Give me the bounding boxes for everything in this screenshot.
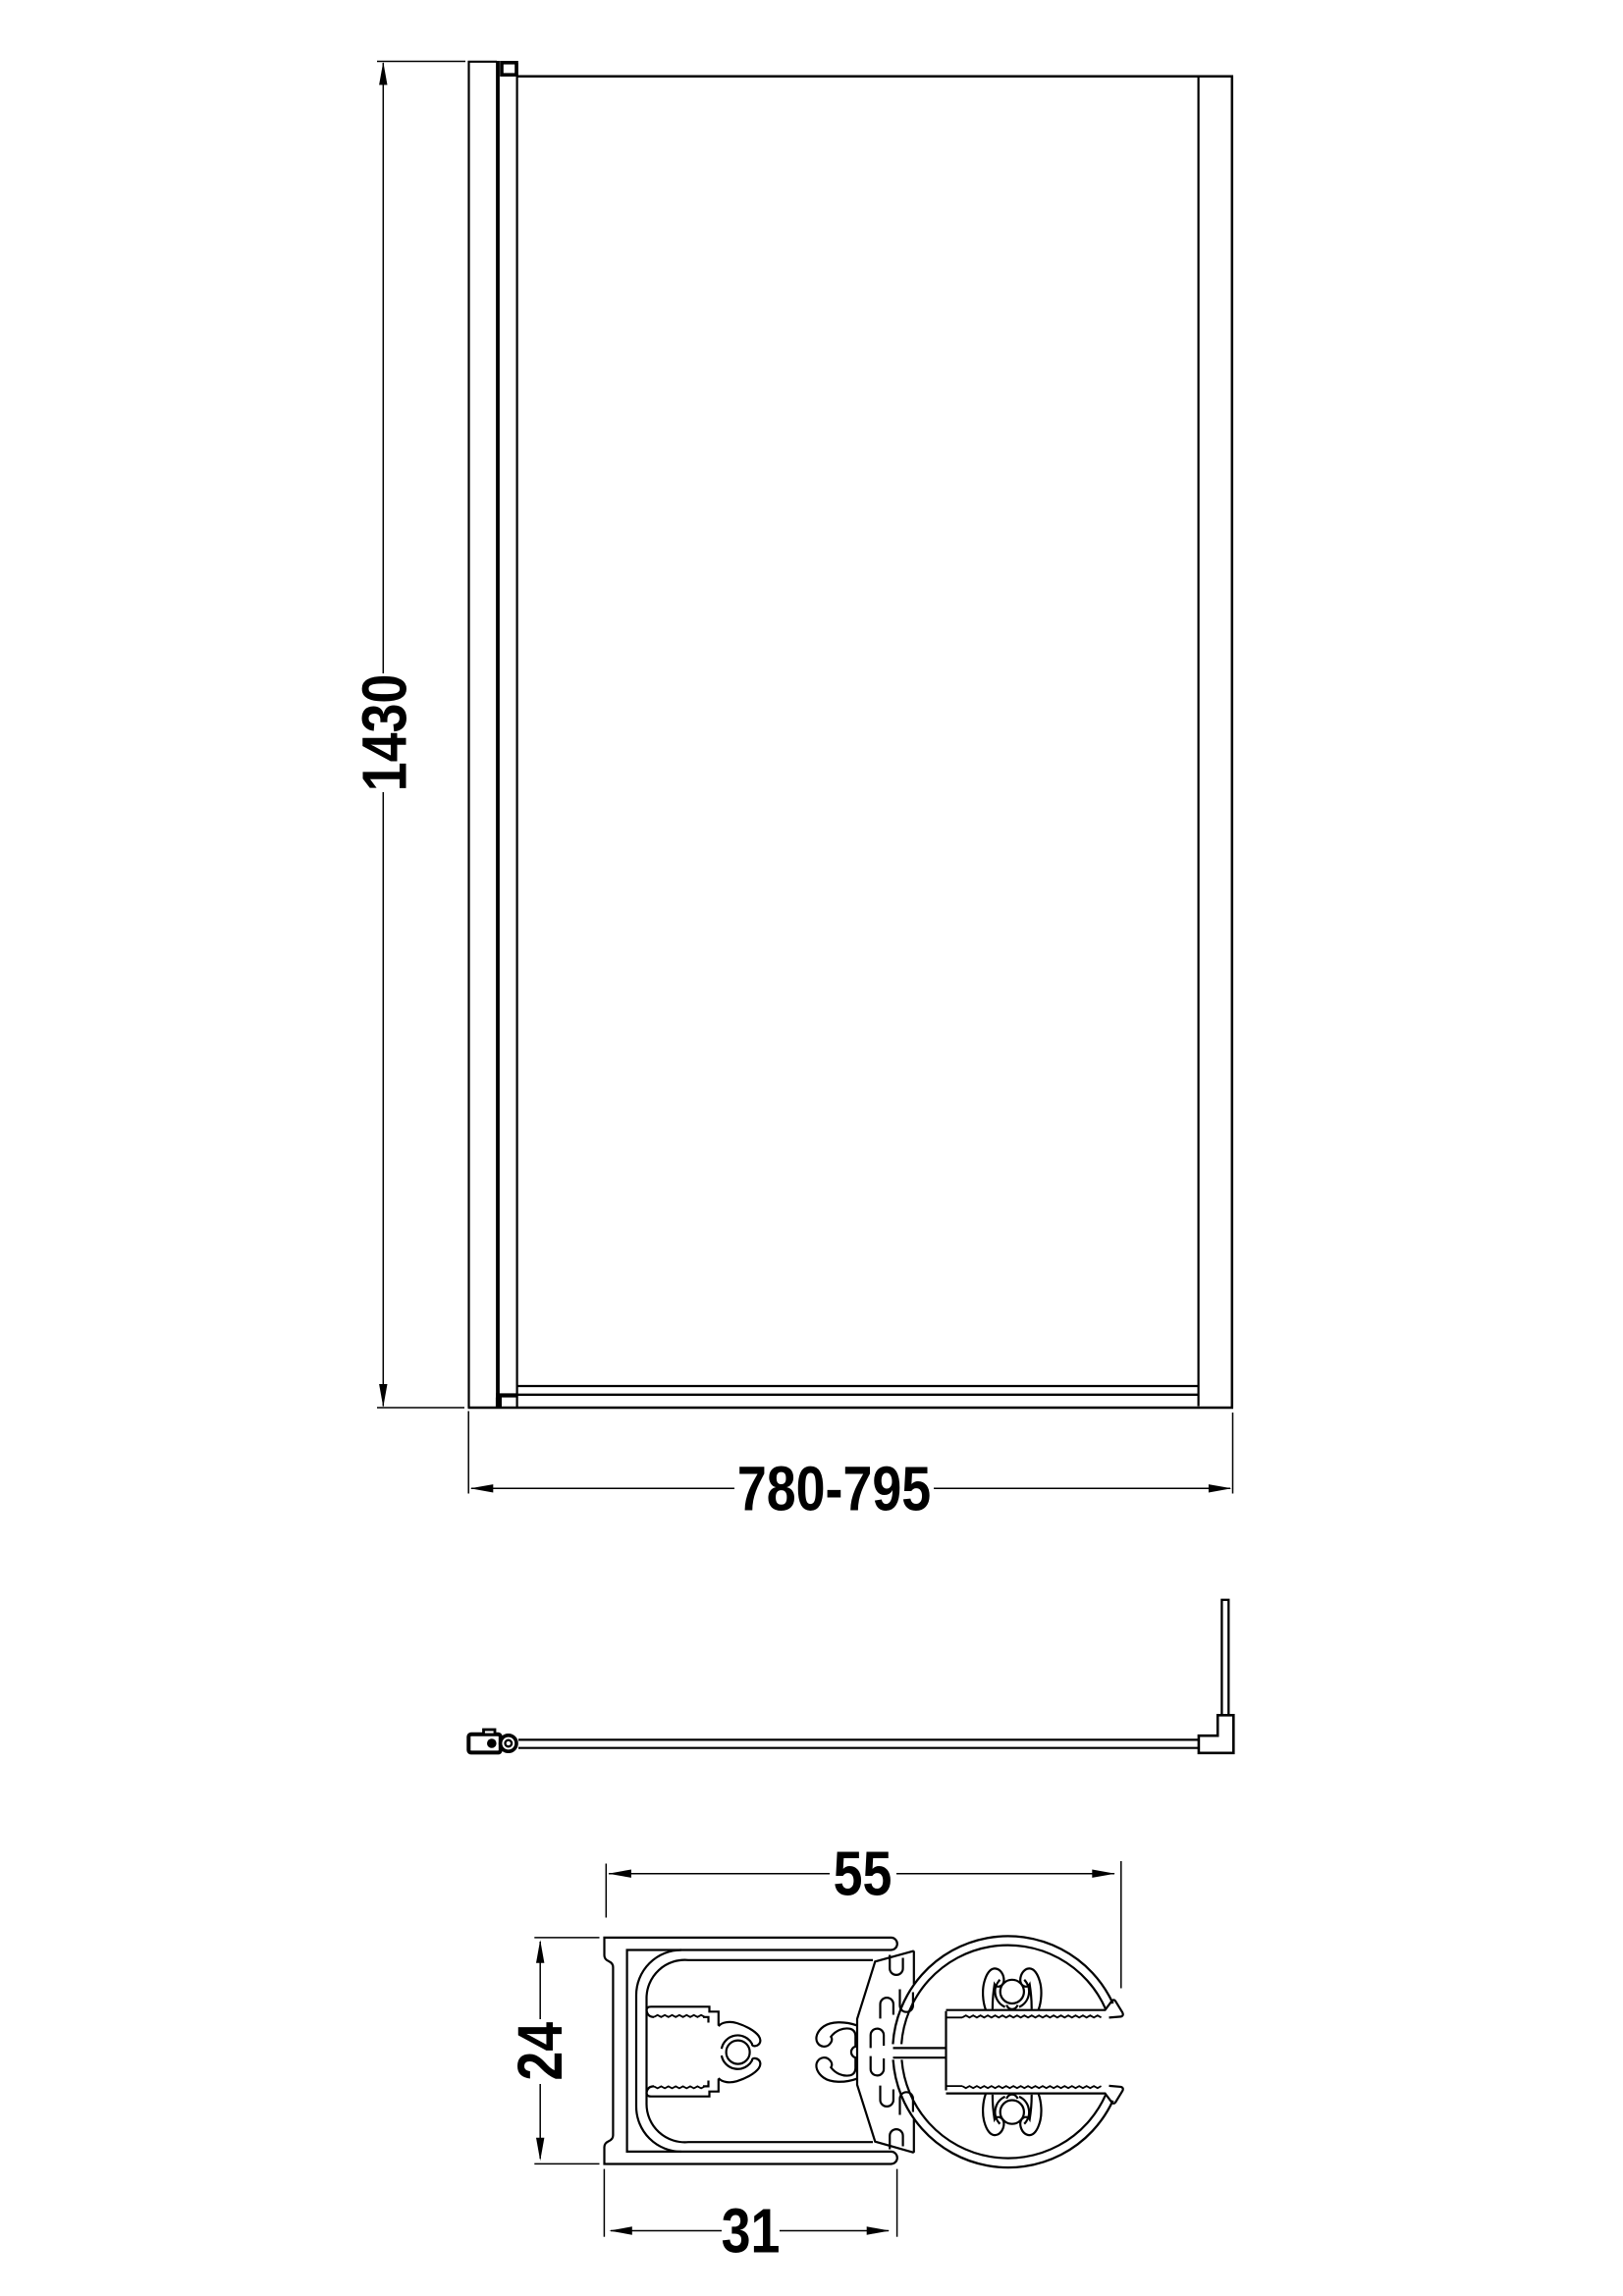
svg-text:24: 24 <box>505 2022 576 2081</box>
svg-text:31: 31 <box>722 2195 781 2267</box>
svg-text:55: 55 <box>834 1838 893 1909</box>
svg-text:780-795: 780-795 <box>737 1453 931 1524</box>
svg-text:1430: 1430 <box>349 674 420 792</box>
